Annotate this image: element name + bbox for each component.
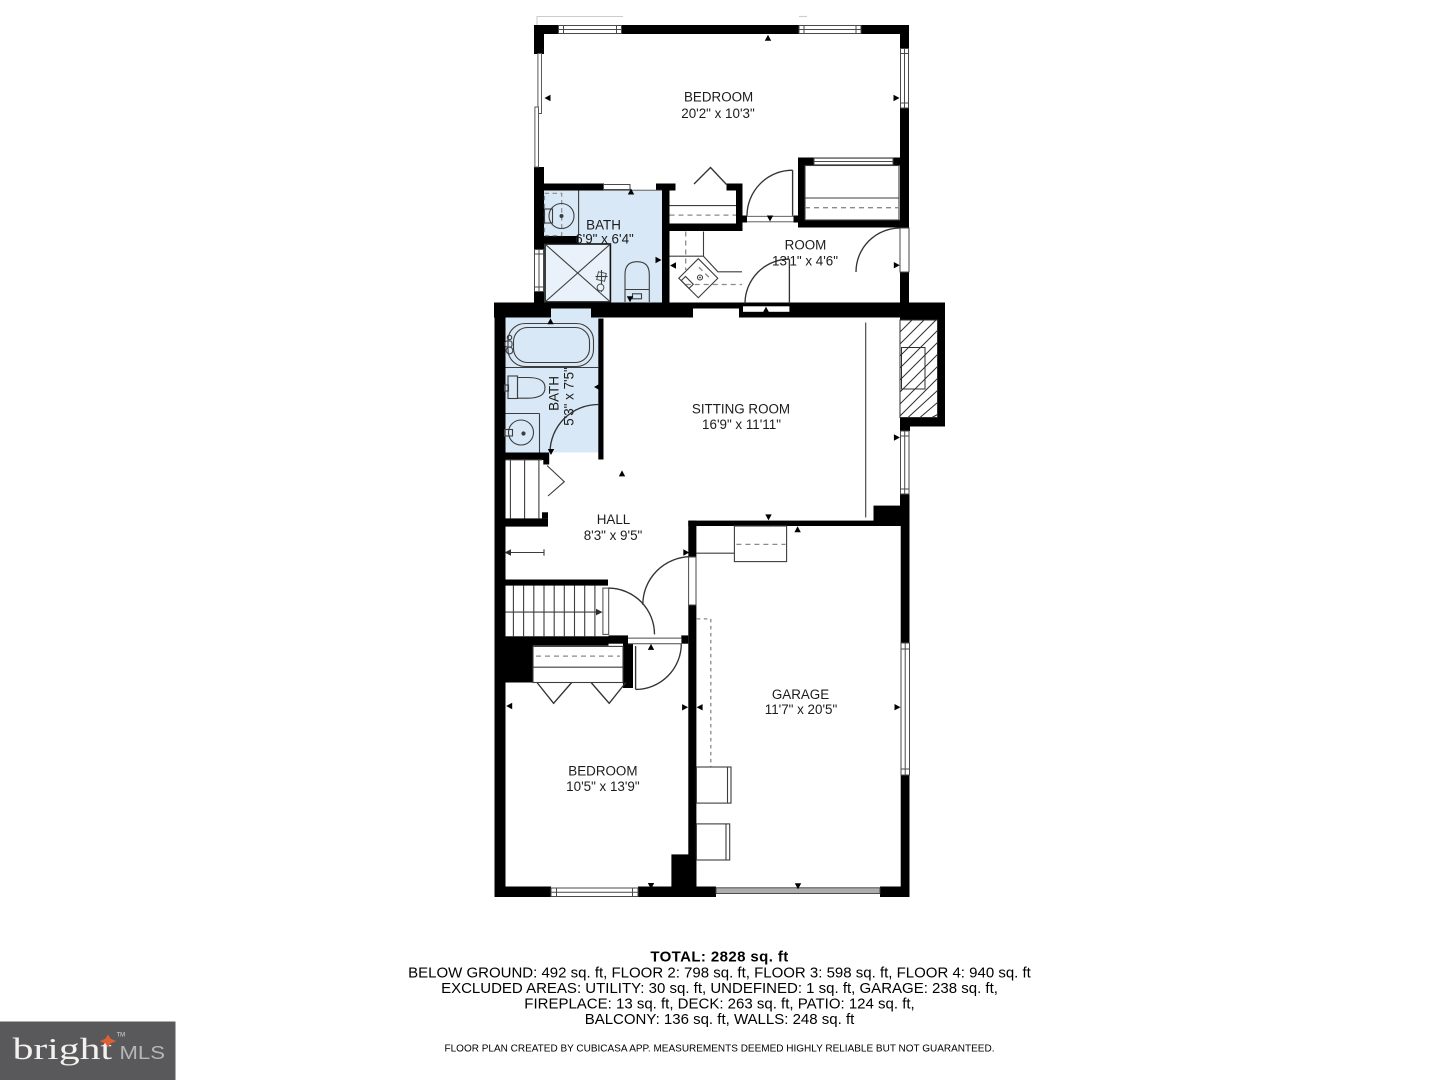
- svg-text:BATH: BATH: [586, 218, 621, 233]
- svg-text:BELOW GROUND: 492 sq. ft, FLOO: BELOW GROUND: 492 sq. ft, FLOOR 2: 798 s…: [408, 964, 1032, 981]
- svg-text:bright: bright: [13, 1032, 113, 1066]
- svg-text:16'9" x 11'11": 16'9" x 11'11": [702, 417, 781, 432]
- svg-text:HALL: HALL: [597, 512, 631, 527]
- svg-text:13'1" x 4'6": 13'1" x 4'6": [772, 254, 838, 269]
- svg-text:TOTAL: 2828 sq. ft: TOTAL: 2828 sq. ft: [650, 949, 788, 966]
- svg-text:5'3" x 7'5": 5'3" x 7'5": [562, 367, 577, 426]
- svg-text:6'9" x 6'4": 6'9" x 6'4": [575, 231, 634, 246]
- svg-text:20'2" x 10'3": 20'2" x 10'3": [681, 106, 755, 121]
- svg-text:MLS: MLS: [120, 1043, 166, 1063]
- svg-text:FIREPLACE: 13 sq. ft, DECK: 26: FIREPLACE: 13 sq. ft, DECK: 263 sq. ft, …: [524, 996, 914, 1013]
- svg-text:11'7" x 20'5": 11'7" x 20'5": [765, 702, 838, 717]
- svg-text:BALCONY: 136 sq. ft, WALLS: 24: BALCONY: 136 sq. ft, WALLS: 248 sq. ft: [585, 1011, 855, 1028]
- svg-text:EXCLUDED AREAS: UTILITY: 30 sq: EXCLUDED AREAS: UTILITY: 30 sq. ft, UNDE…: [441, 980, 998, 997]
- svg-text:FLOOR PLAN CREATED BY CUBICASA: FLOOR PLAN CREATED BY CUBICASA APP. MEAS…: [445, 1043, 995, 1054]
- svg-text:BEDROOM: BEDROOM: [568, 764, 637, 779]
- svg-text:TM: TM: [117, 1033, 126, 1039]
- svg-text:8'3" x 9'5": 8'3" x 9'5": [584, 528, 643, 543]
- svg-text:ROOM: ROOM: [785, 238, 827, 253]
- svg-text:BATH: BATH: [547, 376, 562, 411]
- svg-text:BEDROOM: BEDROOM: [684, 90, 753, 105]
- svg-text:SITTING ROOM: SITTING ROOM: [692, 402, 790, 417]
- svg-text:10'5" x 13'9": 10'5" x 13'9": [566, 779, 640, 794]
- svg-text:GARAGE: GARAGE: [772, 687, 829, 702]
